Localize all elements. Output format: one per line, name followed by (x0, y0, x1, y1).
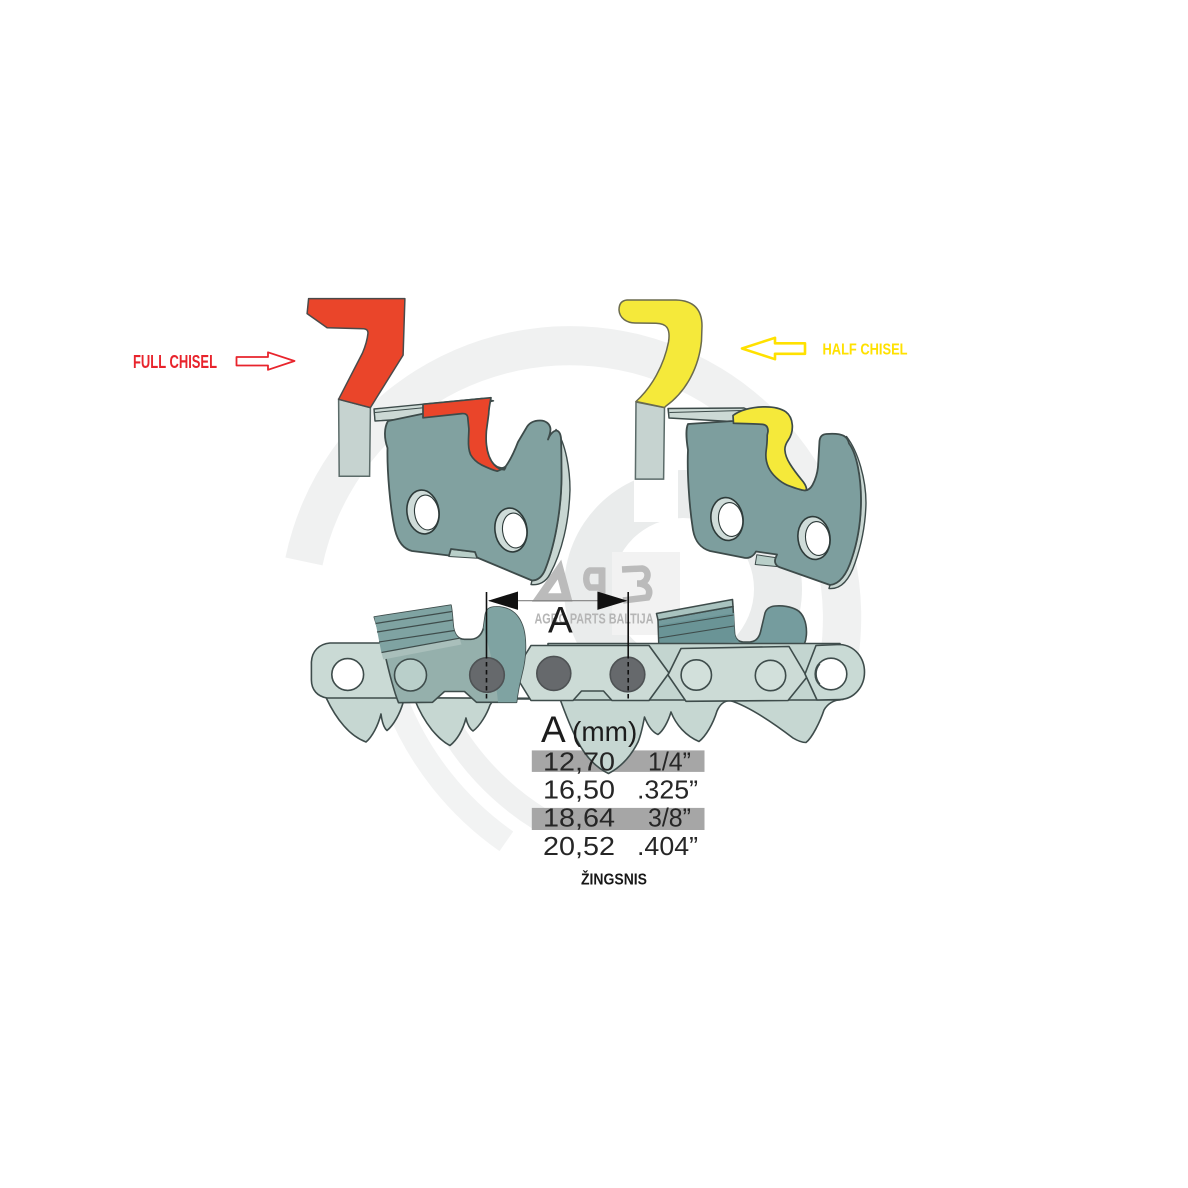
svg-text:1/4”: 1/4” (648, 749, 691, 777)
svg-text:A: A (548, 600, 573, 641)
svg-text:(mm): (mm) (572, 716, 637, 747)
svg-text:A: A (541, 709, 566, 750)
svg-text:3/8”: 3/8” (648, 805, 691, 833)
svg-text:18,64: 18,64 (543, 805, 615, 833)
svg-text:.325”: .325” (637, 777, 698, 805)
svg-text:.404”: .404” (637, 833, 698, 861)
svg-text:ŽINGSNIS: ŽINGSNIS (581, 871, 647, 889)
svg-text:16,50: 16,50 (543, 777, 615, 805)
svg-text:FULL CHISEL: FULL CHISEL (133, 352, 217, 372)
svg-text:12,70: 12,70 (543, 749, 615, 777)
svg-text:HALF CHISEL: HALF CHISEL (823, 342, 908, 359)
svg-text:20,52: 20,52 (543, 833, 615, 861)
